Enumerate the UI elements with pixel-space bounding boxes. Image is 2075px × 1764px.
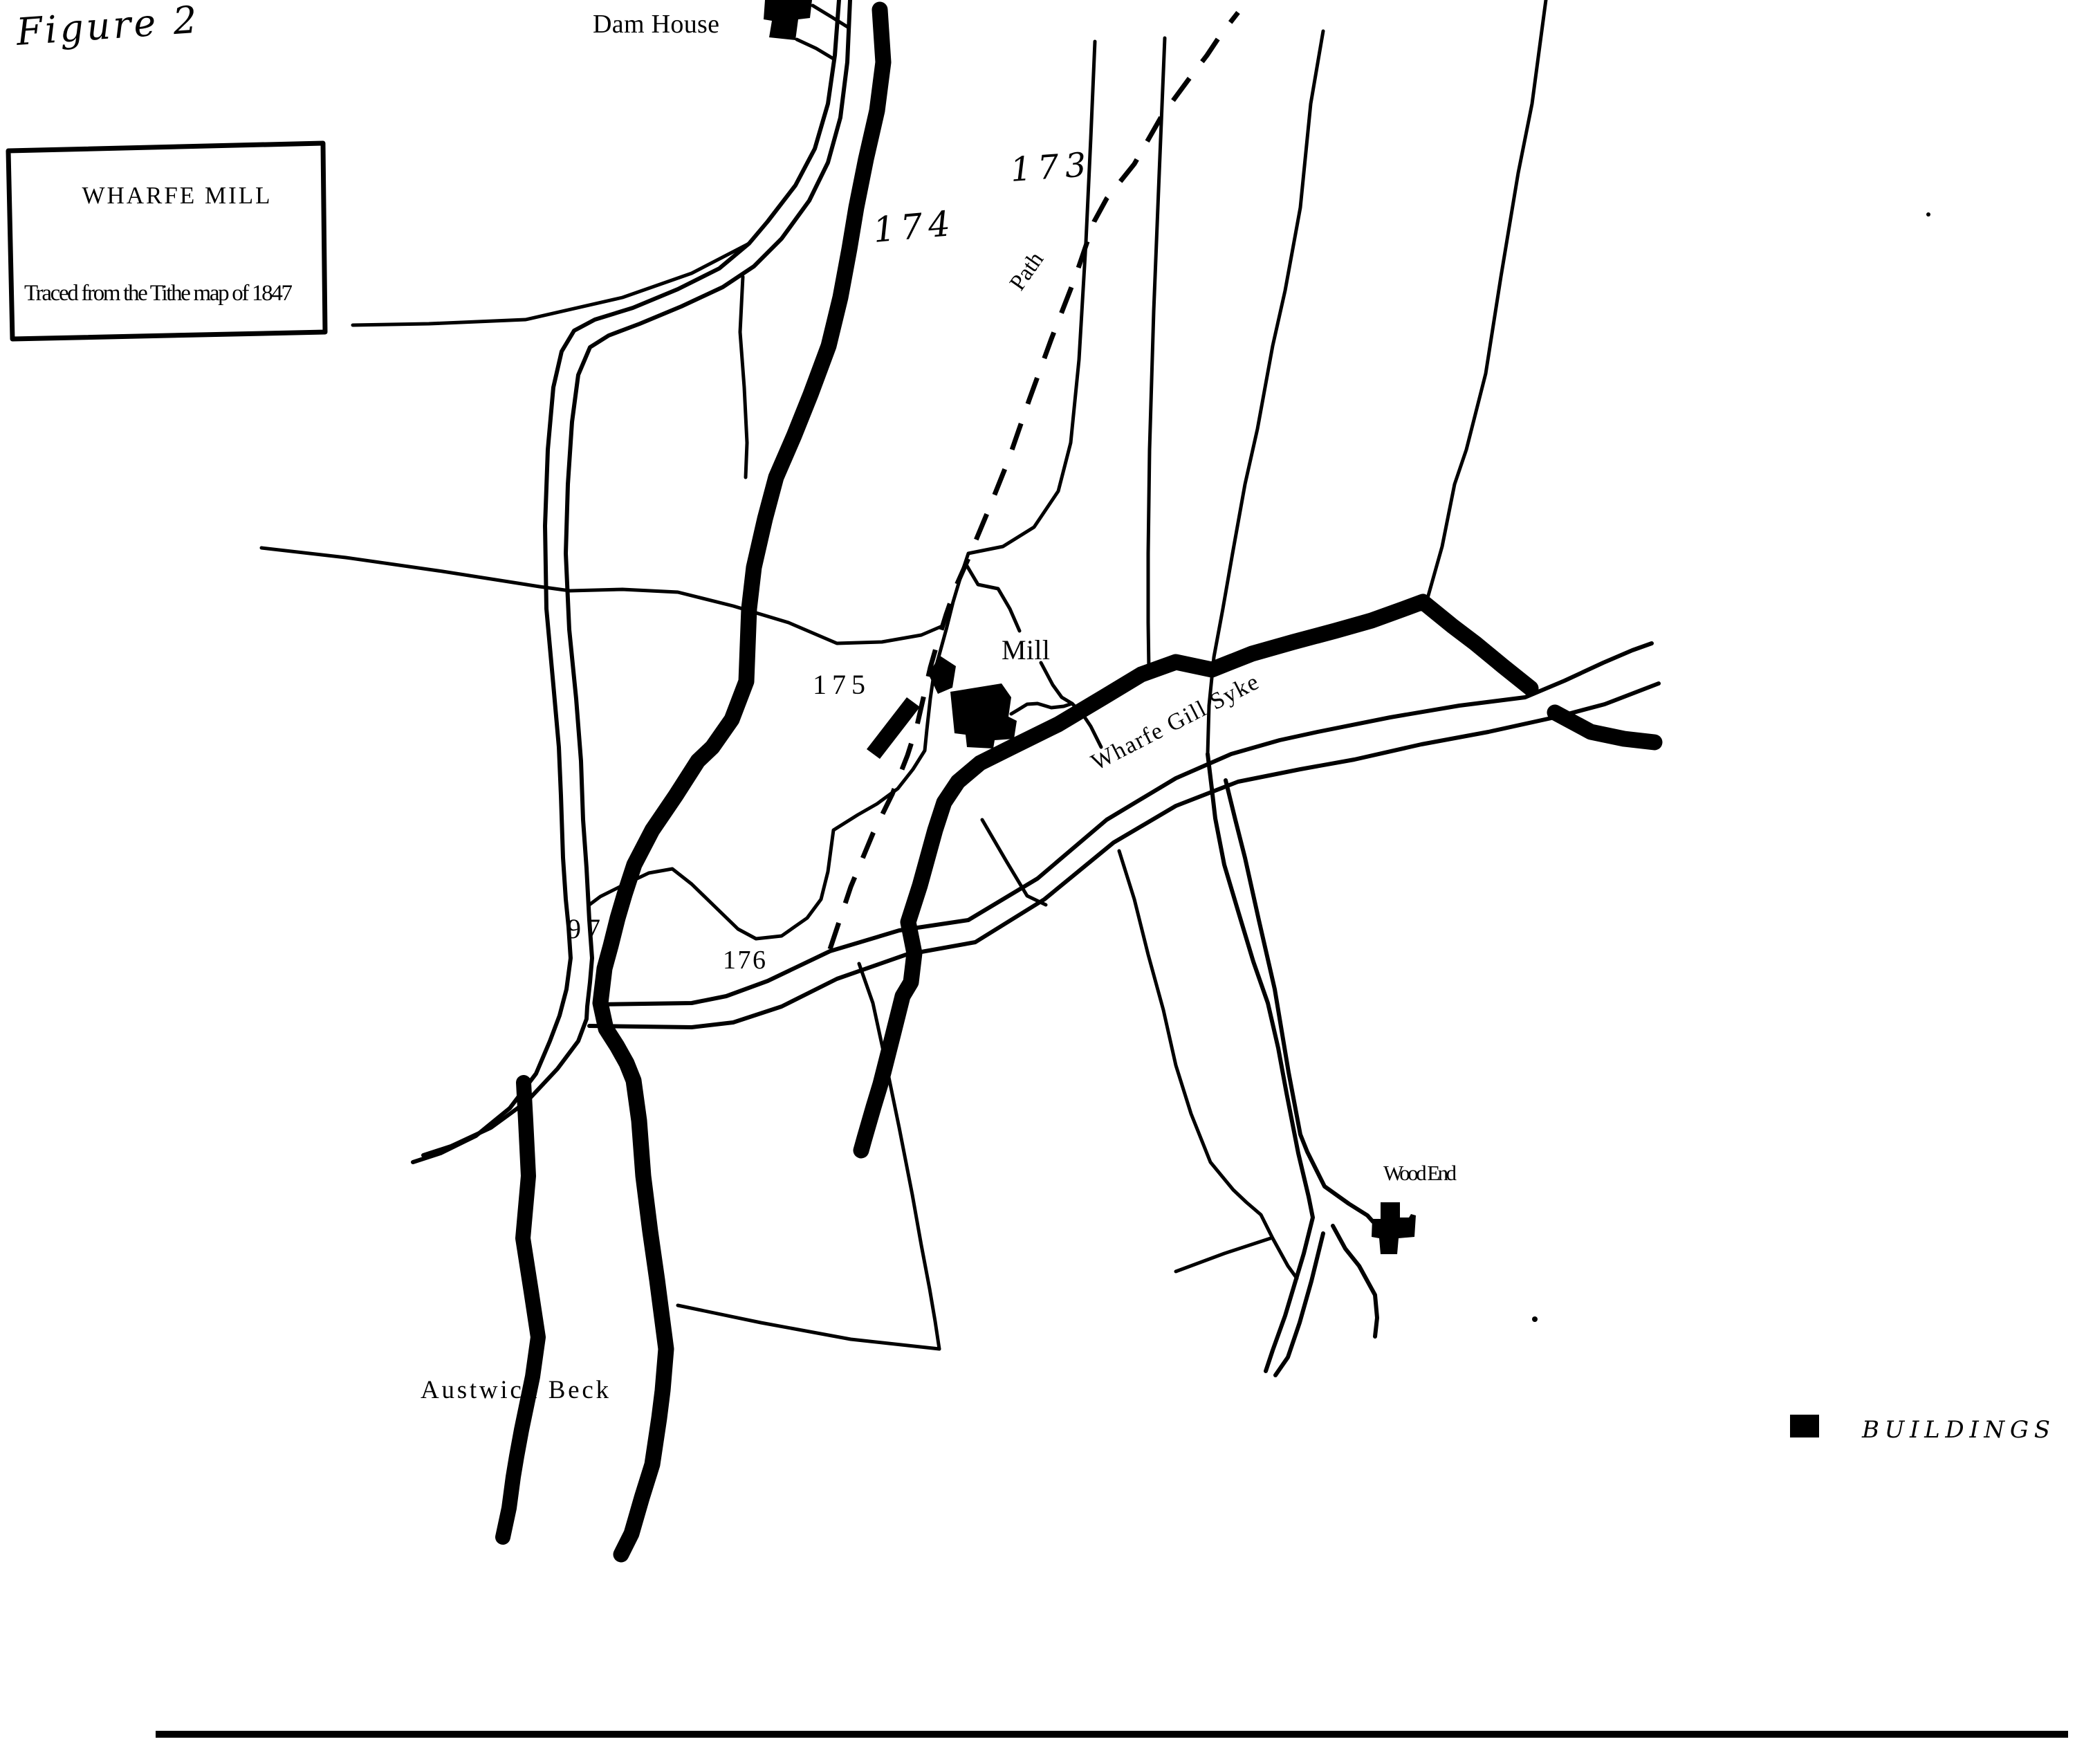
title-box-title: WHARFE MILL [82,182,272,209]
stream-wharfe-gill-syke [861,602,1531,1150]
label-wood-end: Wood End [1383,1161,1457,1185]
ink-speck-top-right [1926,212,1930,217]
title-box [8,143,325,339]
stream-wharfe-gill-syke-east-stub [1555,713,1654,742]
wood-end-lane-curve [1333,1226,1377,1336]
dam-house-connector-upper [813,6,849,28]
field-line-zigzag-to-wood-end [1119,851,1297,1278]
building-mill-main [950,683,1017,748]
traced-tithe-map-page: WHARFE MILL Traced from the Tithe map of… [0,0,2075,1764]
label-dam-house: Dam House [593,10,719,39]
stream-mill-race-from-dam-house [600,10,883,1554]
label-austwick-beck: Austwick Beck [421,1376,609,1404]
boundary-across-road-field175-north [261,548,941,643]
stream-austwick-beck [503,1083,538,1537]
legend-building-symbol [1790,1415,1819,1437]
short-field-line-east-of-road [740,277,747,477]
title-box-subtitle: Traced from the Tithe map of 1847 [24,281,293,306]
building-wood-end [1372,1202,1416,1254]
label-field-175: 175 [813,669,865,700]
figure-label: Figure 2 [15,0,201,54]
wood-end-road-west-line [1208,754,1313,1371]
dam-house-connector-lower [797,39,833,59]
field-line-bottom-east-west [678,1305,939,1349]
label-path: Path [1005,247,1049,295]
field-line-horizontal-near-wood-end [1176,1238,1271,1271]
building-mill-long-slanted [867,697,920,759]
label-field-174: 174 [871,203,957,250]
label-field-176: 176 [723,946,766,975]
field-line-d-to-stream-corner [1427,0,1546,600]
legend-label: BUILDINGS [1861,1416,2056,1444]
building-dam-house [764,0,812,40]
ink-speck-lower-right [1532,1316,1538,1322]
map-canvas: WHARFE MILL Traced from the Tithe map of… [0,0,2075,1764]
page-bottom-rule [156,1731,2068,1738]
label-field-173: 173 [1009,145,1094,190]
label-mill: Mill [1002,634,1050,665]
main-road-west-line [413,0,839,1162]
mill-enclosure-right-arm-upper [967,566,1020,631]
label-field-97: 97 [567,913,600,944]
